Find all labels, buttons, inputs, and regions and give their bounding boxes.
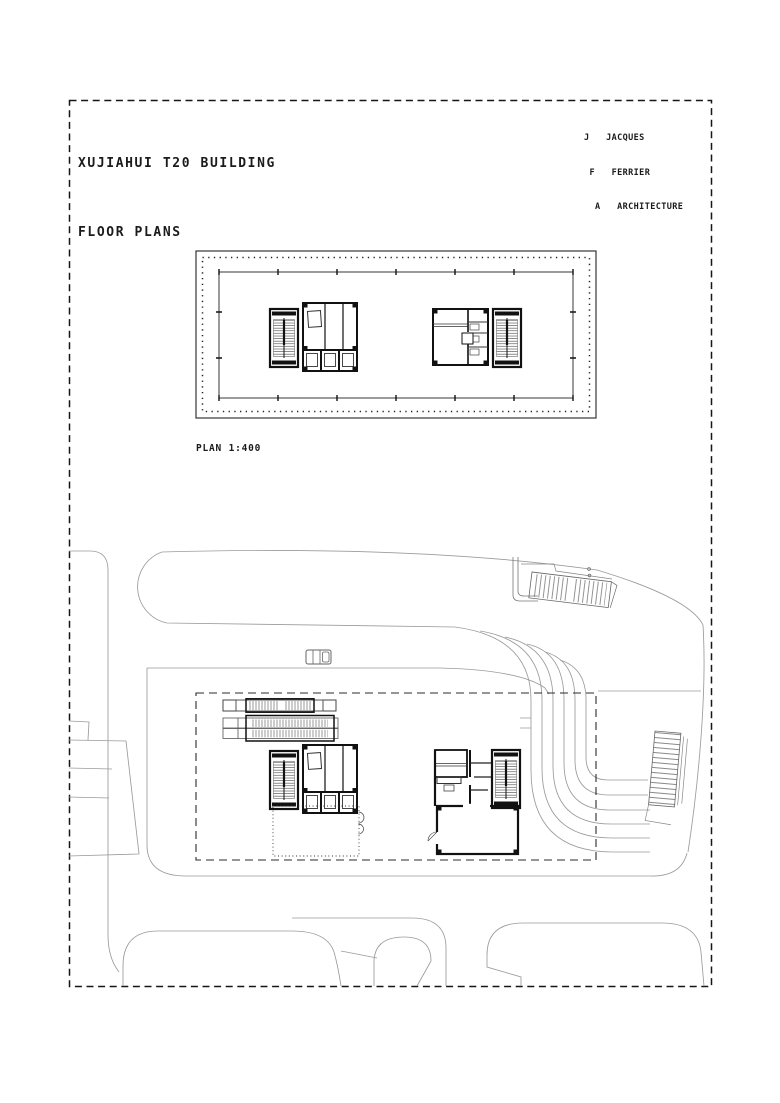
- stair-core-icon: [493, 309, 521, 367]
- elevator-bank-icon: [303, 745, 357, 813]
- logo-line-ferrier: F FERRIER: [584, 168, 683, 180]
- site-plan: [69, 550, 704, 986]
- sheet-title-line1: XUJIAHUI T20 BUILDING: [78, 152, 276, 175]
- escalator-bank-icon: [223, 699, 338, 741]
- adjacent-building-outline: [69, 721, 139, 856]
- external-stair-icon: [645, 731, 688, 826]
- architect-logo: J JACQUES F FERRIER A ARCHITECTURE: [584, 110, 683, 237]
- sheet-title: XUJIAHUI T20 BUILDING FLOOR PLANS: [78, 106, 276, 290]
- floor-plan-sheet: XUJIAHUI T20 BUILDING FLOOR PLANS J JACQ…: [0, 0, 780, 1103]
- elevator-bank-icon: [303, 303, 357, 371]
- service-core: [433, 309, 488, 365]
- stair-core-icon: [270, 309, 298, 367]
- logo-line-architecture: A ARCHITECTURE: [584, 202, 683, 214]
- car-icon: [306, 650, 331, 664]
- road-network: [69, 550, 704, 986]
- sheet-title-line2: FLOOR PLANS: [78, 221, 276, 244]
- plan-scale-label: PLAN 1:400: [196, 443, 261, 454]
- stair-core-icon: [492, 750, 520, 808]
- stair-core-icon: [270, 751, 298, 809]
- reception-desk: [437, 777, 461, 784]
- subway-stair-icon: [513, 557, 617, 608]
- logo-line-jacques: J JACQUES: [584, 133, 683, 145]
